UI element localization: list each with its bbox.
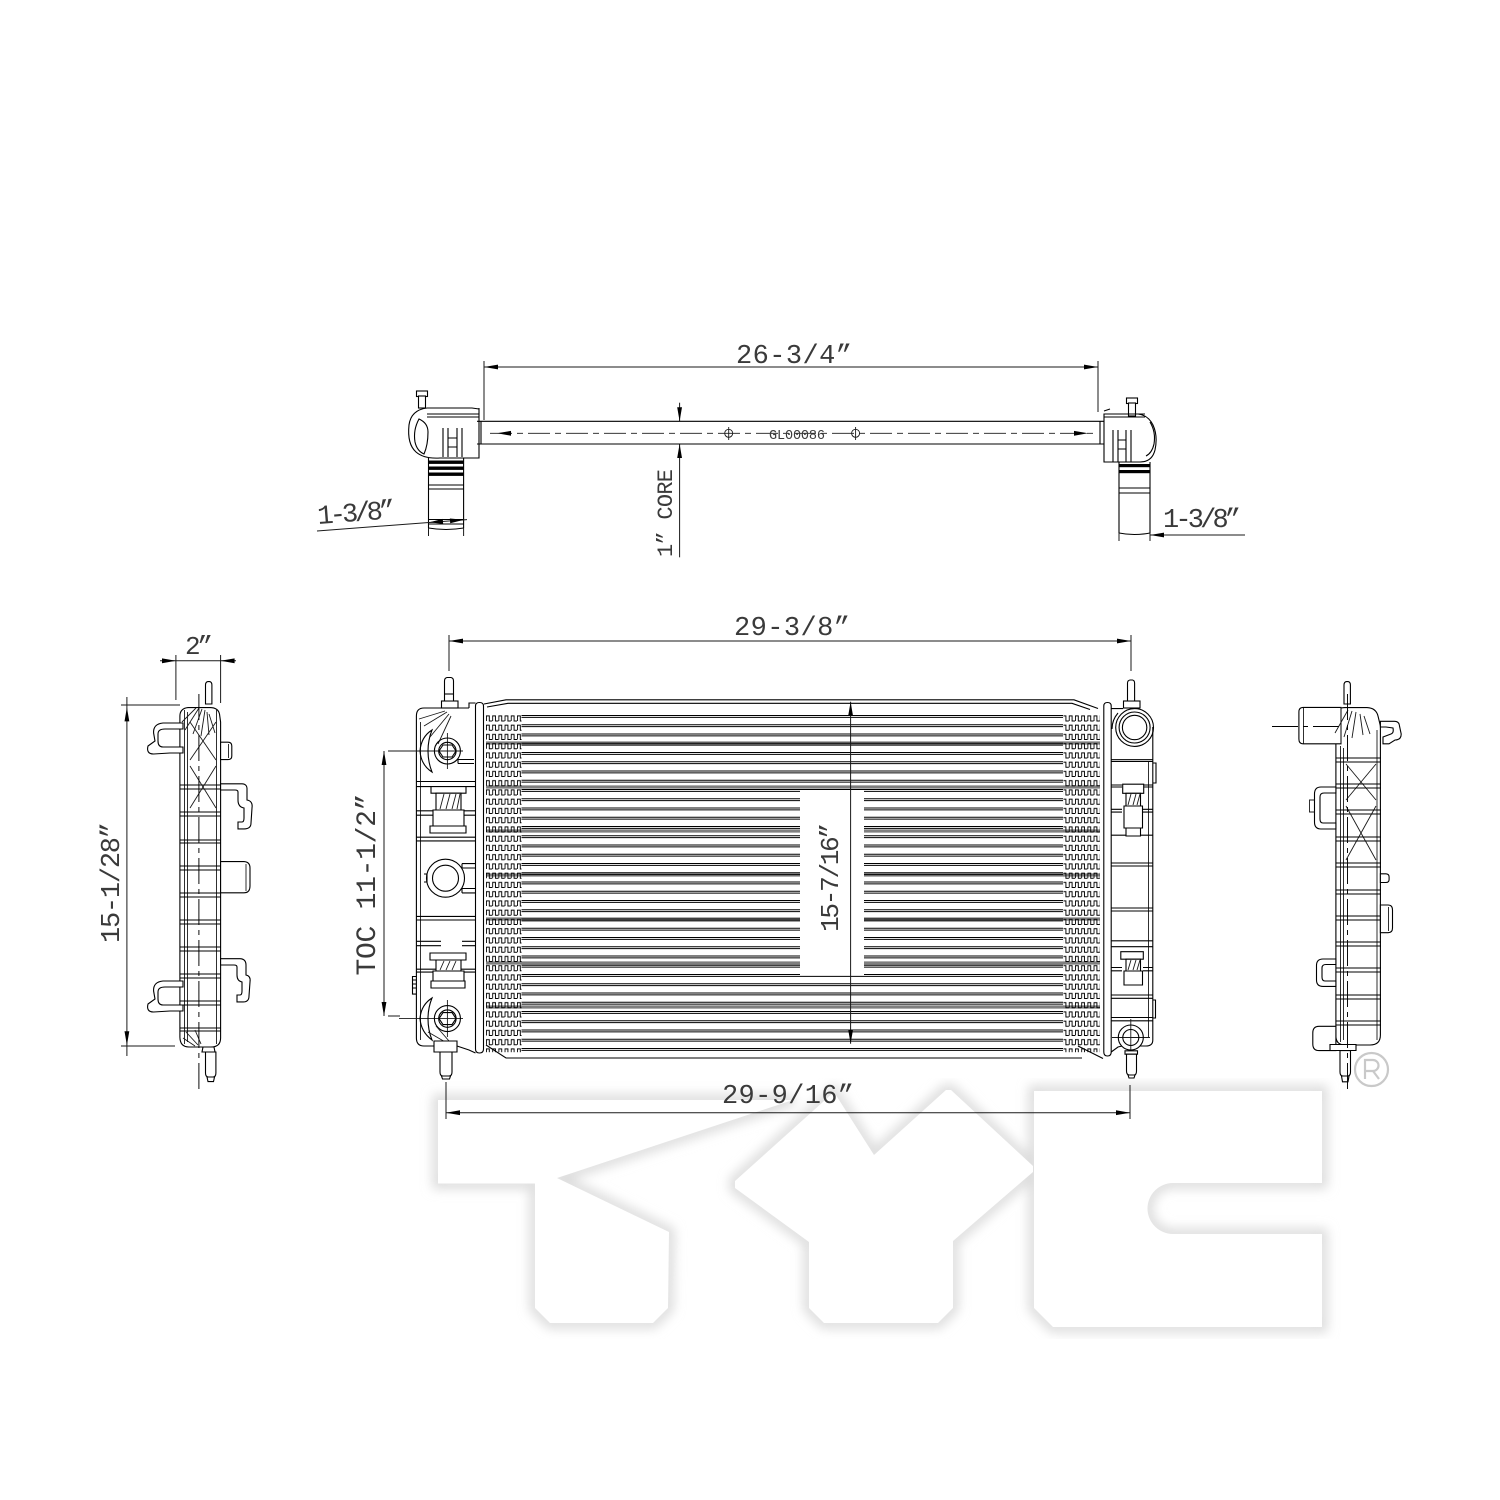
svg-text:GL00086: GL00086	[769, 429, 825, 444]
svg-text:15-7/16”: 15-7/16”	[816, 823, 846, 932]
svg-text:1” CORE: 1” CORE	[654, 469, 679, 557]
svg-text:TOC 11-1/2”: TOC 11-1/2”	[353, 794, 384, 976]
svg-text:29-9/16”: 29-9/16”	[722, 1082, 854, 1112]
svg-text:2”: 2”	[185, 632, 213, 662]
svg-text:1-3/8”: 1-3/8”	[1163, 506, 1241, 536]
svg-text:29-3/8”: 29-3/8”	[734, 614, 850, 644]
svg-text:15-1/28”: 15-1/28”	[98, 822, 128, 943]
